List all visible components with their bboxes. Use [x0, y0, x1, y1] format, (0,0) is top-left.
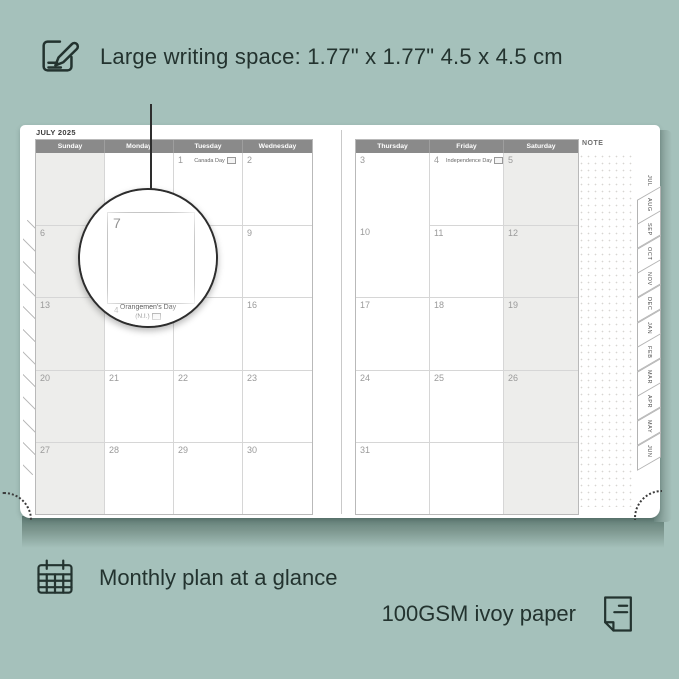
month-tab-label: JUN [637, 439, 661, 464]
holiday-label: Canada Day [190, 157, 240, 164]
weekday-header: Tuesday [174, 140, 243, 153]
day-number: 29 [178, 445, 188, 455]
weekday-header: Sunday [36, 140, 105, 153]
holiday-text: (N.I.) [135, 313, 149, 320]
note-dot-grid [578, 153, 636, 507]
calendar-cell: 28 [105, 442, 174, 514]
day-number: 24 [360, 373, 370, 383]
calendar-cell: 25 [430, 370, 504, 442]
day-number: 12 [508, 228, 518, 238]
calendar-cell: 19 [504, 297, 578, 369]
month-tab-jun[interactable]: JUN [637, 439, 661, 464]
day-number: 4 [434, 155, 439, 165]
calendar-cell: 16 [243, 297, 312, 369]
day-number: 19 [508, 300, 518, 310]
day-number: 3 [360, 155, 365, 165]
calendar-cell: 11 [430, 225, 504, 297]
month-tabs: JUL AUG SEP OCT NOV DEC JAN FEB MAR APR … [637, 168, 661, 463]
calendar-cell: 26 [504, 370, 578, 442]
day-number: 5 [508, 155, 513, 165]
page-spine-line [341, 130, 342, 514]
corner-stitch-decoration [2, 492, 34, 520]
magnified-day-number: 7 [113, 215, 121, 231]
magnifier-circle: 7 4 Orangemen's Day (N.I.) [78, 188, 218, 328]
paper-text: 100GSM ivoy paper [382, 601, 576, 627]
calendar-cell: 17 [356, 297, 430, 369]
monthly-plan-text: Monthly plan at a glance [99, 565, 338, 591]
weekday-header: Friday [430, 140, 504, 153]
day-number: 30 [247, 445, 257, 455]
calendar-cell [504, 442, 578, 514]
day-number: 1 [178, 155, 183, 165]
day-number: 11 [434, 228, 443, 238]
magnified-holiday-line2: (N.I.) [80, 313, 216, 320]
calendar-cell: 27 [36, 442, 105, 514]
calendar-cell: 24 [356, 370, 430, 442]
calendar-cell: 30 [243, 442, 312, 514]
weekday-header: Wednesday [243, 140, 312, 153]
flag-icon [152, 313, 161, 320]
calendar-right-page: Thursday Friday Saturday 3 4 Independenc… [355, 139, 579, 515]
calendar-cell: 23 [243, 370, 312, 442]
day-number: 9 [247, 228, 252, 238]
day-number: 10 [360, 227, 370, 237]
magnified-holiday-line1: Orangemen's Day [80, 304, 216, 311]
weekday-header: Saturday [504, 140, 578, 153]
holiday-label: Independence Day [446, 157, 501, 164]
writing-space-callout: Large writing space: 1.77" x 1.77" 4.5 x… [36, 34, 563, 80]
weekday-header: Monday [105, 140, 174, 153]
flag-icon [494, 157, 503, 164]
paper-icon [596, 592, 640, 636]
calendar-cell: 22 [174, 370, 243, 442]
day-number: 31 [360, 445, 370, 455]
day-number: 13 [40, 300, 50, 310]
calendar-cell: 20 [36, 370, 105, 442]
calendar-cell: 10 [356, 225, 430, 297]
day-number: 16 [247, 300, 257, 310]
calendar-grid-icon [33, 556, 77, 600]
product-image: Large writing space: 1.77" x 1.77" 4.5 x… [0, 0, 679, 679]
calendar-cell: 3 [356, 153, 430, 225]
calendar-cell: 21 [105, 370, 174, 442]
holiday-text: Independence Day [446, 158, 492, 164]
day-number: 6 [40, 228, 45, 238]
calendar-cell: 5 [504, 153, 578, 225]
pencil-note-icon [36, 34, 82, 80]
paper-callout: 100GSM ivoy paper [382, 592, 640, 636]
calendar-cell: 4 Independence Day [430, 153, 504, 225]
day-number: 2 [247, 155, 252, 165]
day-number: 17 [360, 300, 370, 310]
calendar-cell: 18 [430, 297, 504, 369]
calendar-cell: 29 [174, 442, 243, 514]
day-number: 28 [109, 445, 119, 455]
note-label: NOTE [582, 140, 603, 147]
planner-spread: JULY 2025 Sunday Monday Tuesday Wednesda… [20, 125, 660, 518]
day-number: 25 [434, 373, 444, 383]
callout-pointer-line [150, 104, 152, 190]
day-number: 23 [247, 373, 257, 383]
corner-stitch-decoration [630, 488, 662, 520]
day-number: 21 [109, 373, 119, 383]
calendar-cell: 2 [243, 153, 312, 225]
writing-space-text: Large writing space: 1.77" x 1.77" 4.5 x… [100, 44, 563, 70]
day-number: 22 [178, 373, 188, 383]
month-title: JULY 2025 [36, 128, 76, 137]
calendar-cell [430, 442, 504, 514]
planner-cover-edge-bottom [22, 516, 664, 548]
weekday-header-row: Sunday Monday Tuesday Wednesday [36, 140, 312, 153]
monthly-plan-callout: Monthly plan at a glance [33, 556, 338, 600]
calendar-cell: 12 [504, 225, 578, 297]
writing-space-square: 7 [107, 212, 195, 304]
weekday-header: Thursday [356, 140, 430, 153]
day-number: 27 [40, 445, 50, 455]
day-number: 20 [40, 373, 50, 383]
calendar-cell: 31 [356, 442, 430, 514]
holiday-text: Canada Day [194, 158, 225, 164]
day-number: 26 [508, 373, 518, 383]
calendar-grid: 3 4 Independence Day 5 10 11 12 17 18 19… [356, 153, 578, 514]
day-number: 18 [434, 300, 444, 310]
weekday-header-row: Thursday Friday Saturday [356, 140, 578, 153]
flag-icon [227, 157, 236, 164]
calendar-cell: 9 [243, 225, 312, 297]
